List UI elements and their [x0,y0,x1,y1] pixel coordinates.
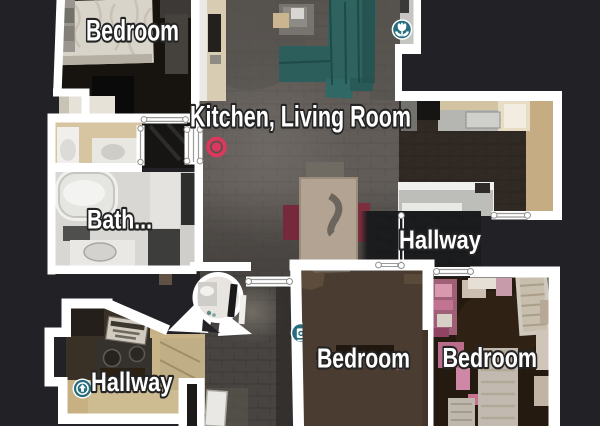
svg-text:Bedroom: Bedroom [86,15,179,48]
svg-text:Hallway: Hallway [399,225,481,255]
svg-text:Hallway: Hallway [91,367,173,397]
svg-text:Bedroom: Bedroom [443,342,538,373]
svg-text:Bedroom: Bedroom [317,342,410,373]
svg-text:Kitchen, Living Room: Kitchen, Living Room [190,101,411,134]
svg-text:Bath...: Bath... [87,205,152,235]
